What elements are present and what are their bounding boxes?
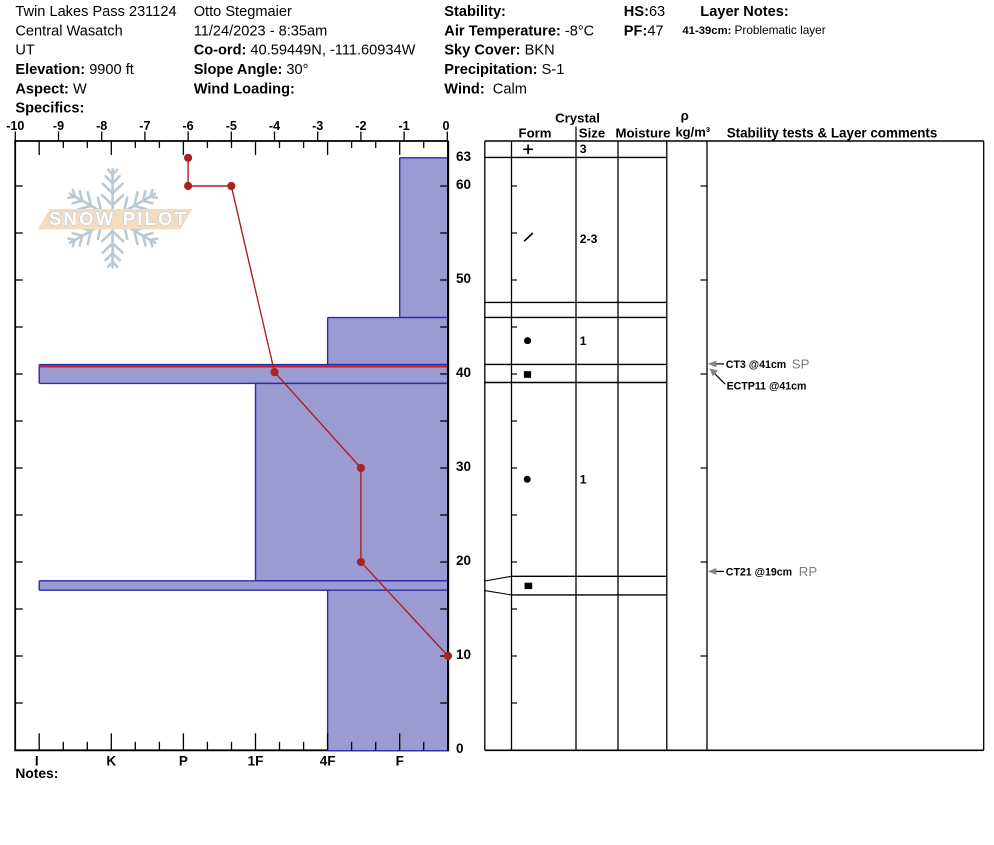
svg-text:HS:63: HS:63: [624, 4, 665, 20]
svg-text:Crystal: Crystal: [555, 111, 600, 126]
svg-text:-1: -1: [398, 119, 409, 133]
svg-text:3: 3: [580, 142, 587, 156]
svg-text:-6: -6: [182, 119, 193, 133]
svg-text:1F: 1F: [248, 754, 264, 769]
svg-text:Central Wasatch: Central Wasatch: [15, 23, 122, 39]
svg-text:P: P: [179, 754, 188, 769]
svg-text:60: 60: [456, 177, 471, 192]
svg-text:40: 40: [456, 365, 471, 380]
svg-text:Wind: Calm: Wind: Calm: [444, 81, 527, 97]
svg-text:F: F: [396, 754, 404, 769]
svg-text:Wind Loading:: Wind Loading:: [194, 81, 295, 97]
svg-text:2-3: 2-3: [580, 232, 598, 246]
svg-text:1: 1: [580, 334, 587, 348]
svg-text:Twin Lakes Pass 231124: Twin Lakes Pass 231124: [15, 4, 176, 20]
svg-text:1: 1: [580, 473, 587, 487]
svg-text:Aspect: W: Aspect: W: [15, 81, 87, 97]
svg-text:Sky Cover: BKN: Sky Cover: BKN: [444, 43, 554, 59]
svg-text:-9: -9: [53, 119, 64, 133]
svg-text:Otto Stegmaier: Otto Stegmaier: [194, 4, 292, 20]
svg-text:4F: 4F: [320, 754, 336, 769]
svg-text:41-39cm: Problematic layer: 41-39cm: Problematic layer: [682, 23, 825, 37]
svg-text:PF:47: PF:47: [624, 23, 664, 39]
svg-text:Stability:: Stability:: [444, 4, 506, 20]
svg-text:Elevation: 9900 ft: Elevation: 9900 ft: [15, 62, 133, 78]
svg-text:SNOW PILOT: SNOW PILOT: [49, 208, 188, 229]
svg-text:ρ: ρ: [681, 108, 689, 123]
svg-text:Size: Size: [579, 125, 605, 140]
svg-text:-3: -3: [312, 119, 323, 133]
svg-text:Precipitation: S-1: Precipitation: S-1: [444, 62, 564, 78]
svg-text:kg/m³: kg/m³: [675, 125, 710, 140]
svg-text:CT3 @41cm: CT3 @41cm: [726, 359, 786, 371]
svg-text:Form: Form: [519, 125, 552, 140]
svg-text:-2: -2: [355, 119, 366, 133]
svg-text:Specifics:: Specifics:: [15, 101, 84, 117]
svg-text:SP: SP: [792, 357, 810, 372]
svg-text:RP: RP: [799, 564, 818, 579]
svg-text:Stability tests & Layer commen: Stability tests & Layer comments: [727, 125, 938, 140]
svg-text:Co-ord: 40.59449N, -111.60934W: Co-ord: 40.59449N, -111.60934W: [194, 43, 416, 59]
svg-text:Air Temperature: -8°C: Air Temperature: -8°C: [444, 23, 594, 39]
svg-text:-4: -4: [269, 119, 280, 133]
svg-text:ECTP11 @41cm: ECTP11 @41cm: [727, 380, 807, 392]
svg-text:UT: UT: [15, 43, 35, 59]
svg-text:Slope Angle: 30°: Slope Angle: 30°: [194, 62, 309, 78]
svg-text:0: 0: [442, 119, 449, 133]
svg-text:K: K: [106, 754, 116, 769]
svg-text:-7: -7: [139, 119, 150, 133]
svg-text:Moisture: Moisture: [616, 125, 671, 140]
svg-text:Notes:: Notes:: [15, 766, 58, 781]
svg-text:-5: -5: [226, 119, 237, 133]
svg-text:50: 50: [456, 271, 471, 286]
svg-text:CT21 @19cm: CT21 @19cm: [726, 567, 792, 579]
svg-text:10: 10: [456, 647, 471, 662]
svg-text:63: 63: [456, 149, 472, 164]
svg-text:-10: -10: [6, 119, 24, 133]
svg-text:Layer Notes:: Layer Notes:: [700, 4, 788, 20]
svg-text:20: 20: [456, 553, 471, 568]
svg-text:11/24/2023 - 8:35am: 11/24/2023 - 8:35am: [194, 23, 328, 39]
svg-text:0: 0: [456, 741, 464, 756]
svg-text:30: 30: [456, 459, 471, 474]
svg-text:-8: -8: [96, 119, 107, 133]
